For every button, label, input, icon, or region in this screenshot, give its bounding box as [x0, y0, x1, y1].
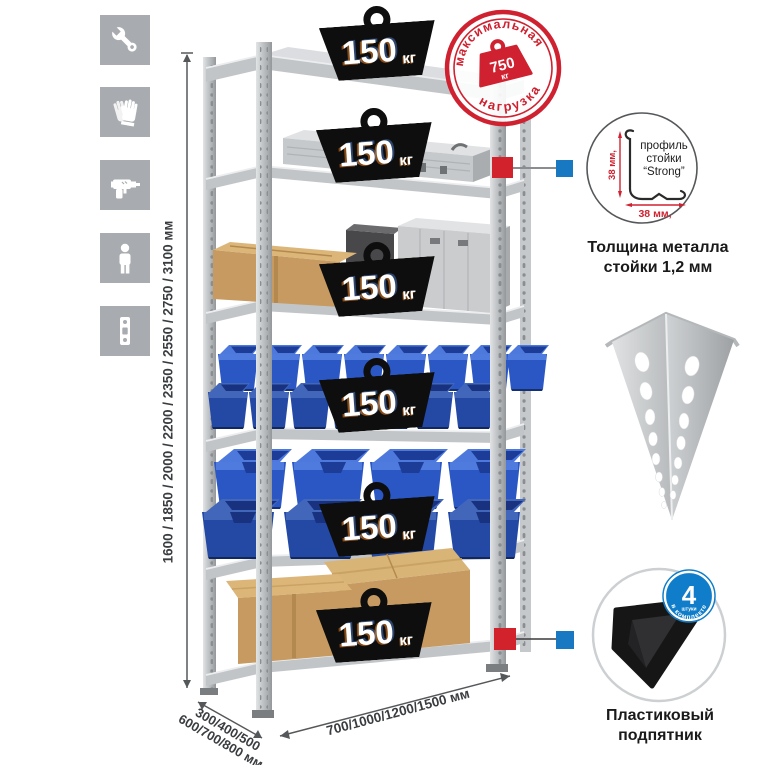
profile-dim-vertical-label: 38 мм, [607, 150, 618, 180]
profile-caption: Толщина металла стойки 1,2 мм [566, 238, 750, 278]
weight-badge-4: 150кг [318, 354, 439, 434]
height-dimension-line [181, 53, 193, 688]
profile-detail-circle: 38 мм, 38 мм, профиль стойки “Strong” [584, 110, 700, 226]
qty-badge: 4 штуки в комплекте [663, 570, 715, 622]
plastic-foot-circle: 4 штуки в комплекте [590, 566, 732, 708]
rack-post-icon [100, 306, 150, 356]
profile-caption-line2: стойки 1,2 мм [566, 258, 750, 278]
foot-caption-line1: Пластиковый [576, 706, 744, 726]
profile-label-line3: “Strong” [643, 166, 685, 178]
weight-badge-6: 150кг [315, 584, 436, 664]
profile-callout-connector [492, 157, 573, 178]
weight-badge-1: 150кг [318, 2, 439, 82]
gloves-icon [100, 87, 150, 137]
height-dimension-label: 1600 / 1850 / 2000 / 2200 / 2350 / 2550 … [161, 221, 176, 564]
profile-dim-horizontal-label: 38 мм, [638, 208, 671, 220]
weight-badge-5: 150кг [318, 478, 439, 558]
foot-caption-line2: подпятник [576, 726, 744, 746]
qty-badge-number: 4 [682, 580, 697, 610]
back-left-post [200, 57, 218, 695]
foot-caption: Пластиковый подпятник [576, 706, 744, 746]
weight-badge-3: 150кг [318, 238, 439, 318]
qty-badge-word: штуки [681, 607, 696, 613]
foot-callout-connector [494, 628, 574, 650]
drill-icon [100, 160, 150, 210]
profile-label-line2: стойки [646, 153, 681, 165]
wrench-icon [100, 15, 150, 65]
weight-badge-2: 150кг [315, 104, 436, 184]
profile-label: профиль стойки “Strong” [640, 140, 688, 178]
shelving-rack-infographic: 1600 / 1850 / 2000 / 2200 / 2350 / 2550 … [0, 0, 765, 765]
profile-caption-line1: Толщина металла [566, 238, 750, 258]
perforated-angle-post-image [586, 298, 742, 526]
person-icon [100, 233, 150, 283]
profile-label-line1: профиль [640, 140, 688, 152]
